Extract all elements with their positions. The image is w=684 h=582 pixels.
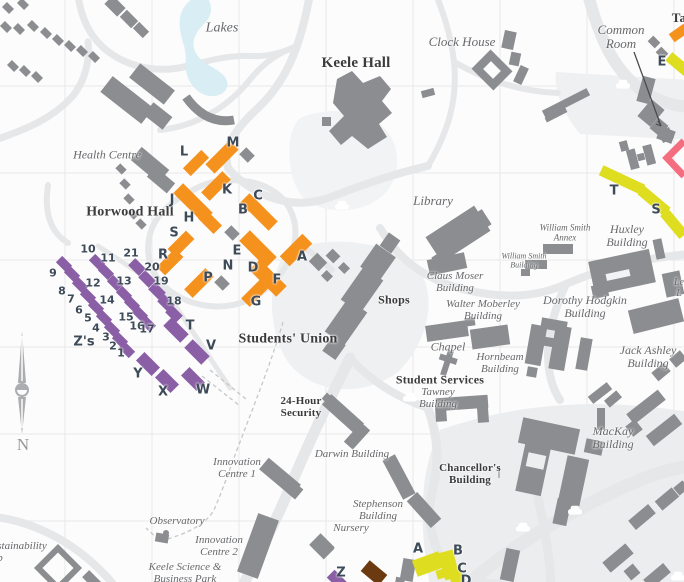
jack-ashley-buildings	[628, 298, 684, 381]
compass-north-label: N	[17, 435, 29, 455]
map-graphics	[0, 0, 684, 582]
brown-building	[361, 560, 388, 582]
tawney-building	[435, 395, 489, 423]
northwest-housing	[0, 0, 149, 230]
campus-map: LakesKeele HallClock HouseCommonRoomHeal…	[0, 0, 684, 582]
horwood-gray-diamonds	[214, 147, 255, 291]
huxley-building	[588, 238, 684, 299]
lake	[180, 0, 228, 96]
observatory-building	[155, 530, 169, 544]
security-building	[322, 393, 371, 450]
chapel-cross-icon	[434, 348, 459, 378]
footpath-dashed	[146, 322, 283, 541]
dorothy-hodgkin-complex	[525, 317, 593, 377]
walter-moberley-building	[425, 317, 510, 349]
pink-building-outline	[667, 141, 684, 176]
compass-north-icon	[16, 331, 28, 434]
innovation-centre-buildings	[237, 458, 335, 579]
